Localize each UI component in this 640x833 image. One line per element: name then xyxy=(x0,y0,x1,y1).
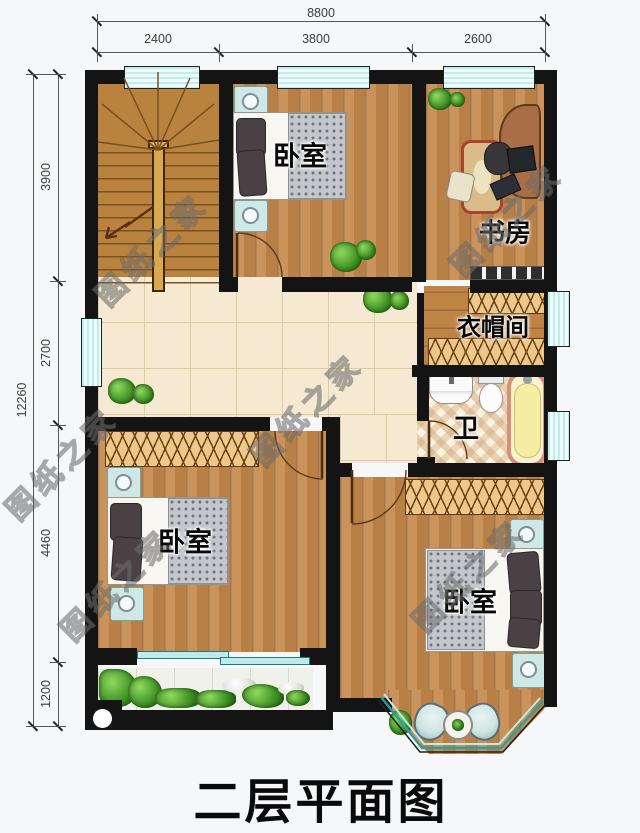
wall xyxy=(340,698,392,712)
faucet-icon xyxy=(449,376,454,384)
dim-seg: 1200 xyxy=(39,680,53,708)
toilet xyxy=(479,383,503,413)
dim-extension xyxy=(50,662,66,663)
dim-seg: 3800 xyxy=(302,32,330,46)
wall xyxy=(85,710,333,730)
lamp-icon xyxy=(520,661,537,678)
wall xyxy=(282,277,412,292)
plant-icon xyxy=(286,690,310,706)
room-label-bedroom-top: 卧室 xyxy=(273,135,327,174)
wall xyxy=(85,648,137,665)
bathtub-basin xyxy=(514,383,541,458)
window xyxy=(277,66,370,89)
dim-extension xyxy=(545,14,546,62)
dim-seg: 2400 xyxy=(144,32,172,46)
dim-extension xyxy=(50,425,66,426)
window xyxy=(124,66,200,89)
wardrobe xyxy=(405,479,546,515)
plant-icon xyxy=(389,710,412,735)
wall xyxy=(417,377,429,421)
wall xyxy=(470,280,557,293)
plant-icon xyxy=(428,88,452,110)
dimension-line xyxy=(97,21,545,22)
page-title: 二层平面图 xyxy=(85,762,557,832)
wall xyxy=(340,463,352,477)
wall xyxy=(412,70,426,282)
stair-newel-cap xyxy=(148,140,169,149)
dim-total-height: 12260 xyxy=(15,383,29,418)
window xyxy=(81,318,102,387)
wall xyxy=(408,463,557,477)
room-label-bathroom: 卫 xyxy=(453,409,479,446)
wall xyxy=(326,417,340,712)
dim-extension xyxy=(97,14,98,62)
window xyxy=(443,66,535,89)
plant-icon xyxy=(108,378,136,404)
plant-icon xyxy=(196,690,236,708)
hall-floor-lower xyxy=(340,415,417,463)
lamp-icon xyxy=(115,474,132,491)
window xyxy=(547,411,570,461)
plant-icon xyxy=(155,688,201,708)
dim-seg: 2600 xyxy=(464,32,492,46)
dim-seg: 3900 xyxy=(39,163,53,191)
plant-icon xyxy=(450,92,465,107)
dim-total-width: 8800 xyxy=(307,6,335,20)
plant-icon xyxy=(133,384,154,404)
dim-extension xyxy=(50,281,66,282)
wardrobe xyxy=(105,431,259,467)
bed-pillows xyxy=(507,617,541,650)
window xyxy=(547,291,570,347)
sliding-door xyxy=(137,651,229,659)
bed-pillows xyxy=(236,149,267,197)
dim-seg: 4460 xyxy=(39,529,53,557)
dim-extension xyxy=(219,44,220,62)
wall xyxy=(412,365,557,377)
wall xyxy=(219,277,238,292)
wall xyxy=(219,70,233,292)
lamp-icon xyxy=(242,207,259,224)
dimension-line xyxy=(33,74,34,726)
dimension-line xyxy=(97,52,545,53)
sliding-door xyxy=(220,657,310,665)
dim-seg: 2700 xyxy=(39,339,53,367)
lamp-icon xyxy=(242,93,259,110)
dim-extension xyxy=(26,74,66,75)
plant-icon xyxy=(390,291,409,310)
room-label-cloakroom: 衣帽间 xyxy=(457,308,529,343)
dim-extension xyxy=(26,726,66,727)
plant-icon xyxy=(356,240,376,260)
floor-plan-canvas: 卧室 书房 衣帽间 卫 卧室 卧室 图纸之家 图纸之家 图纸之家 图纸之家 图纸… xyxy=(0,0,640,833)
column xyxy=(93,709,112,728)
dimension-line xyxy=(58,74,59,726)
dim-extension xyxy=(412,44,413,62)
plant-icon xyxy=(452,719,464,731)
